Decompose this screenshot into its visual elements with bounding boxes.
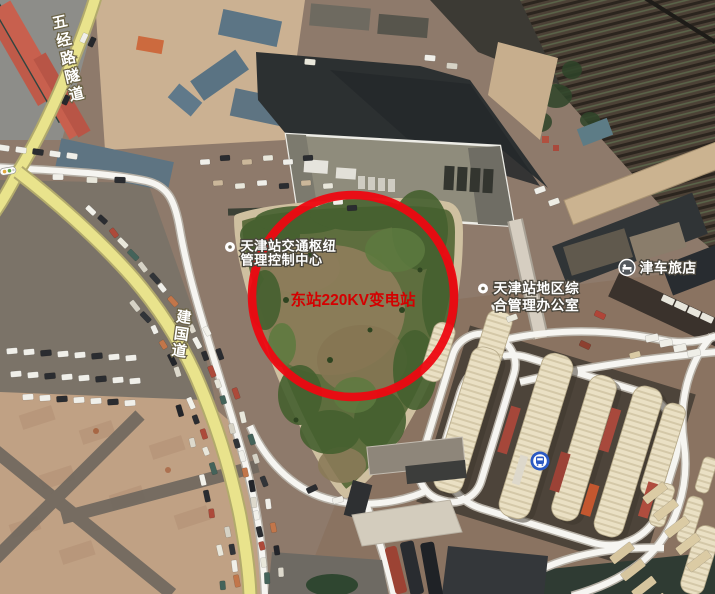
map-canvas[interactable]: 东站220KV变电站 五经路隧道 建国道 天津站交通枢纽 管理控制中心 天津站地…: [0, 0, 715, 594]
satellite-map-view[interactable]: 东站220KV变电站 五经路隧道 建国道 天津站交通枢纽 管理控制中心 天津站地…: [0, 0, 715, 594]
hotel-bed-icon[interactable]: [619, 260, 635, 276]
poi-control-center[interactable]: 天津站交通枢纽 管理控制中心: [225, 238, 336, 268]
poi-admin-office-line2: 合管理办公室: [494, 297, 580, 313]
poi-control-center-line1: 天津站交通枢纽: [241, 238, 337, 254]
poi-admin-office-line1: 天津站地区综: [494, 280, 580, 296]
poi-control-center-line2: 管理控制中心: [241, 252, 323, 268]
bus-station-icon[interactable]: [531, 452, 550, 471]
poi-hotel[interactable]: 津车旅店: [619, 260, 697, 276]
annotation-label: 东站220KV变电站: [291, 290, 416, 309]
poi-hotel-label: 津车旅店: [640, 260, 697, 276]
